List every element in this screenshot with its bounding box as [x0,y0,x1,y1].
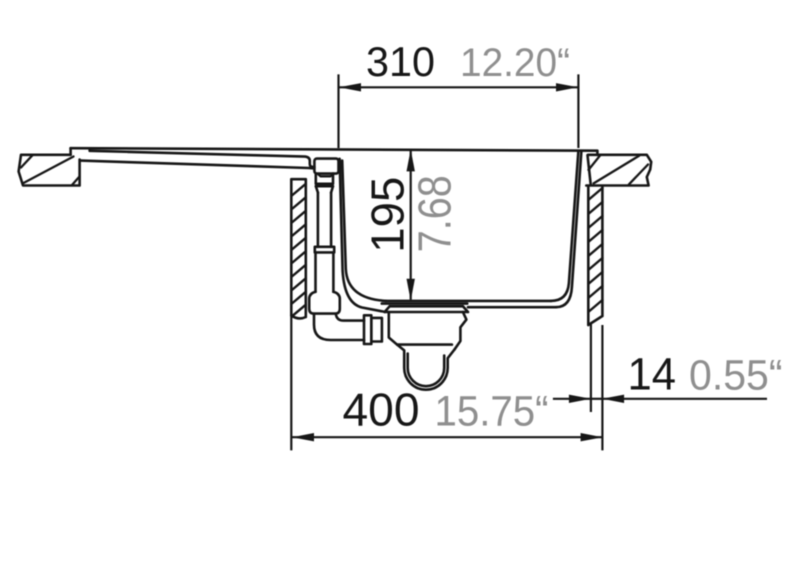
svg-text:400: 400 [343,383,420,435]
svg-text:7.68: 7.68 [408,175,460,252]
svg-text:15.75“: 15.75“ [435,387,549,435]
svg-text:310: 310 [366,38,435,85]
svg-text:12.20“: 12.20“ [460,41,570,85]
svg-text:14: 14 [628,349,677,400]
svg-text:195: 195 [361,177,413,253]
svg-text:0.55“: 0.55“ [689,352,783,400]
